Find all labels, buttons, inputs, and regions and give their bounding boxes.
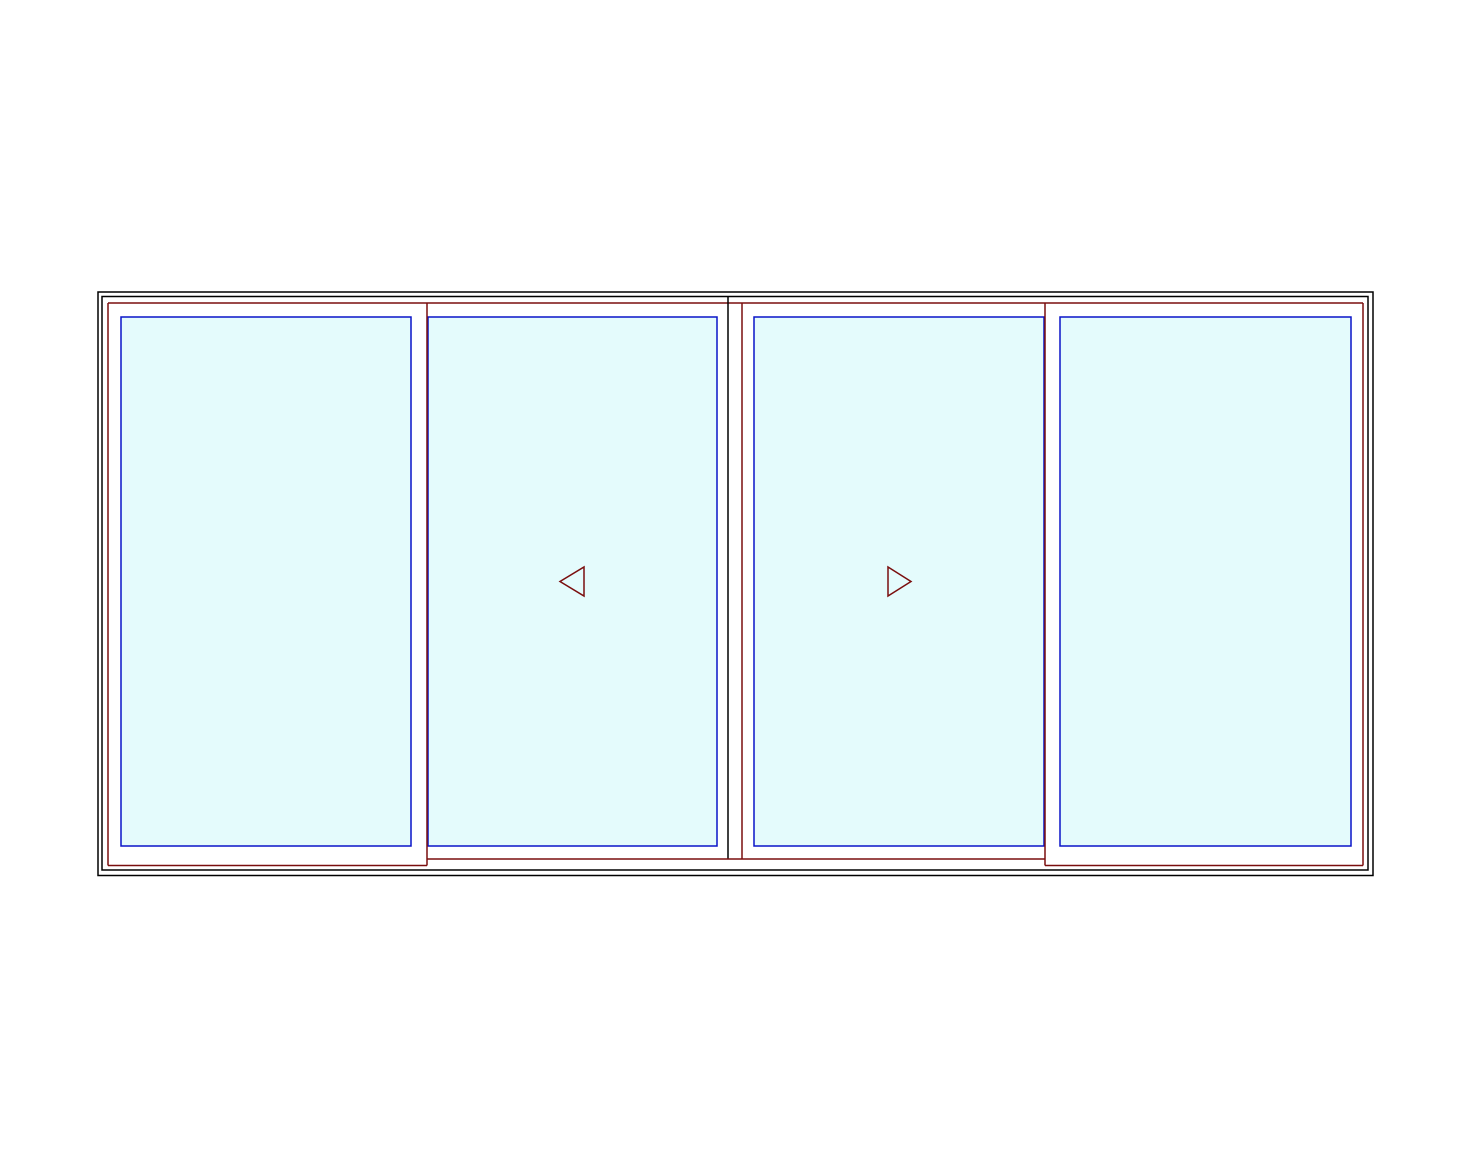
glass-panel-3: [754, 317, 1044, 846]
glass-panel-4: [1060, 317, 1351, 846]
sliding-door-elevation-drawing: [0, 0, 1483, 1171]
glass-panel-1: [121, 317, 411, 846]
window-elevation-canvas: [0, 0, 1483, 1171]
glass-panel-2: [428, 317, 717, 846]
